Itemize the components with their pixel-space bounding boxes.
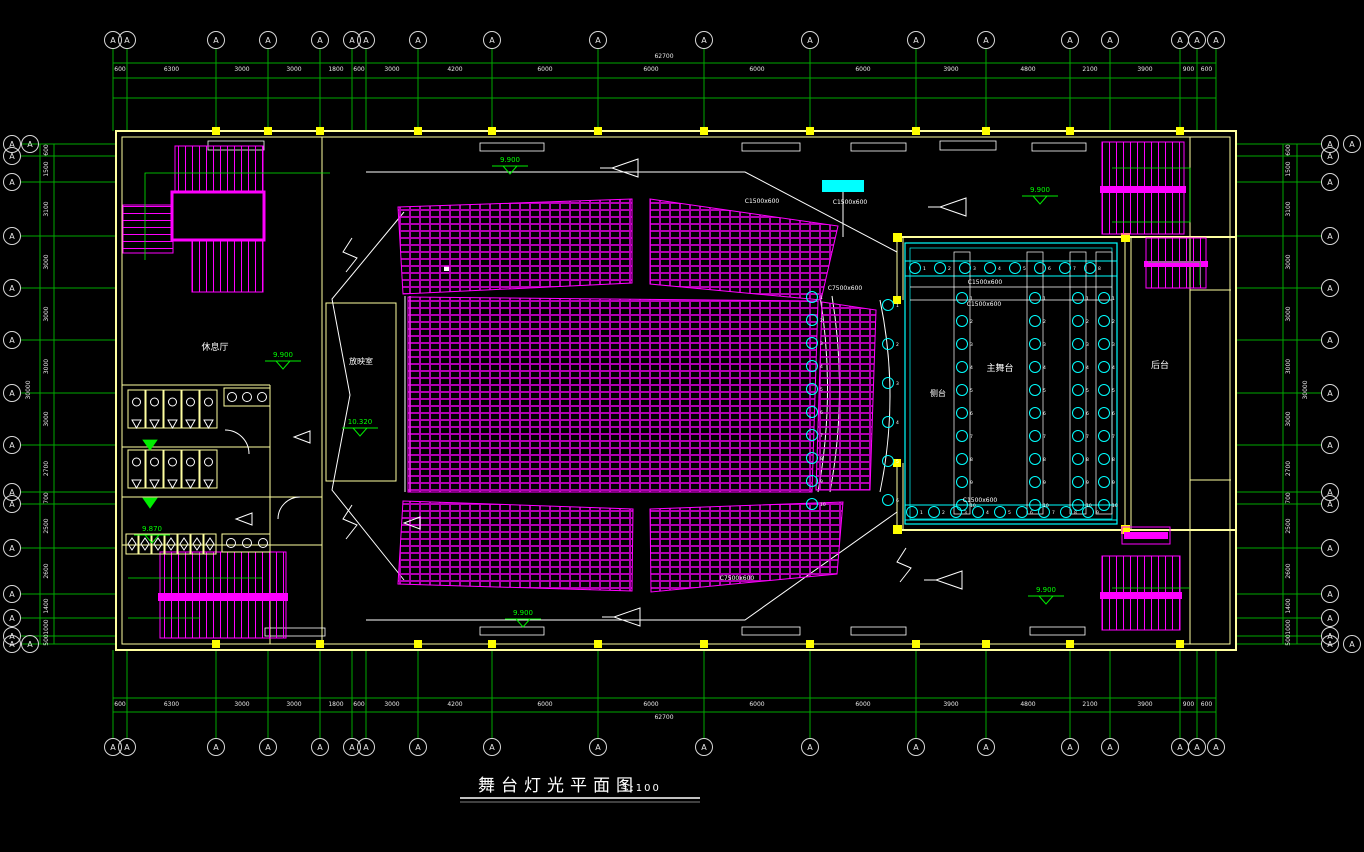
dimension-label: 3000 xyxy=(234,66,249,73)
stage-light xyxy=(1073,385,1084,396)
sink-basin xyxy=(228,393,237,402)
equipment-label: C1500x600 xyxy=(833,199,868,206)
stage-light-number: 9 xyxy=(1096,510,1099,516)
stage-light-number: 8 xyxy=(1112,457,1115,463)
room-label-side-stage: 侧台 xyxy=(930,388,946,398)
wc-fixture xyxy=(133,458,141,466)
seat-block-rear-curve xyxy=(816,302,876,490)
dimension-label: 6000 xyxy=(537,66,552,73)
equipment-label: C1500x600 xyxy=(963,497,998,504)
dimension-label: 900 xyxy=(1183,66,1195,73)
door-swing-arc xyxy=(225,430,249,454)
axis-bubble-label: A xyxy=(213,36,219,45)
wc-fixture xyxy=(187,398,195,406)
stall-door xyxy=(150,420,159,428)
axis-bubble-label: A xyxy=(213,743,219,752)
drawing-title: 舞台灯光平面图 xyxy=(478,776,639,796)
stage-light xyxy=(1030,316,1041,327)
axis-bubble-label: A xyxy=(1327,590,1333,599)
elevation-marker-triangle xyxy=(276,361,290,369)
stage-light-number: 3 xyxy=(1086,342,1089,348)
stage-light xyxy=(957,362,968,373)
sink-basin xyxy=(243,393,252,402)
dimension-label: 600 xyxy=(114,701,126,708)
toilet-stall xyxy=(146,390,163,428)
stage-light-number: 7 xyxy=(1073,266,1076,272)
flow-arrow xyxy=(143,498,157,508)
stall-door xyxy=(204,420,213,428)
stage-light-number: 4 xyxy=(820,364,823,370)
axis-bubble-label: A xyxy=(1327,389,1333,398)
axis-bubble-label: A xyxy=(363,743,369,752)
stall-door xyxy=(168,420,177,428)
overall-height-label: 30000 xyxy=(25,380,32,399)
sink-counter xyxy=(222,534,270,552)
stage-light xyxy=(960,263,971,274)
axis-bubble-label: A xyxy=(1327,152,1333,161)
stage-light-number: 6 xyxy=(1112,411,1115,417)
stage-light-number: 9 xyxy=(1043,480,1046,486)
sink-counter xyxy=(224,388,270,406)
stage-light xyxy=(1099,454,1110,465)
axis-bubble-label: A xyxy=(1349,140,1355,149)
axis-bubble-label: A xyxy=(1349,640,1355,649)
dimension-label: 2500 xyxy=(43,518,50,533)
stage-light xyxy=(957,339,968,350)
axis-bubble-label: A xyxy=(1327,614,1333,623)
stage-light xyxy=(985,263,996,274)
equipment-label: C7500x600 xyxy=(828,285,863,292)
stage-light xyxy=(1010,263,1021,274)
dimension-label: 3000 xyxy=(384,701,399,708)
axis-bubble-label: A xyxy=(1107,36,1113,45)
stage-light xyxy=(1073,293,1084,304)
dimension-label: 500 xyxy=(43,634,50,646)
dimension-label: 3000 xyxy=(43,306,50,321)
stage-light-number: 5 xyxy=(1023,266,1026,272)
stage-batten-track xyxy=(1070,252,1086,514)
dimension-label: 2600 xyxy=(43,563,50,578)
axis-bubble-label: A xyxy=(9,152,15,161)
elevation-value: 9.900 xyxy=(513,609,533,617)
stage-light-number: 10 xyxy=(1086,503,1092,509)
orchestra-arc xyxy=(880,300,890,492)
stage-light xyxy=(957,477,968,488)
stage-light xyxy=(935,263,946,274)
axis-bubble-label: A xyxy=(1327,178,1333,187)
exit-arrow-small xyxy=(294,431,310,443)
elevation-value: 9.900 xyxy=(500,156,520,164)
axis-bubble-label: A xyxy=(9,640,15,649)
stage-light-number: 5 xyxy=(896,459,899,465)
dimension-label: 3000 xyxy=(234,701,249,708)
stage-light-number: 9 xyxy=(820,479,823,485)
overall-width-label: 62700 xyxy=(654,714,673,721)
dimension-label: 3000 xyxy=(286,66,301,73)
stage-light-number: 4 xyxy=(1112,365,1115,371)
stage-light xyxy=(1099,408,1110,419)
stage-light-number: 4 xyxy=(1086,365,1089,371)
toilet-stall xyxy=(200,390,217,428)
stage-light xyxy=(1030,431,1041,442)
dimension-label: 6000 xyxy=(749,66,764,73)
axis-bubble-label: A xyxy=(913,743,919,752)
wc-fixture xyxy=(205,458,213,466)
stage-light-number: 8 xyxy=(1086,457,1089,463)
stage-light xyxy=(1099,339,1110,350)
axis-bubble-label: A xyxy=(1327,232,1333,241)
stage-light-number: 10 xyxy=(820,502,826,508)
axis-bubble-label: A xyxy=(317,36,323,45)
dimension-label: 1000 xyxy=(43,619,50,634)
dimension-label: 900 xyxy=(1183,701,1195,708)
axis-bubble-label: A xyxy=(349,36,355,45)
sink-basin xyxy=(227,539,236,548)
stage-light-number: 2 xyxy=(942,510,945,516)
axis-bubble-label: A xyxy=(265,36,271,45)
stage-light-number: 1 xyxy=(896,303,899,309)
axis-bubble-label: A xyxy=(807,36,813,45)
wc-fixture xyxy=(169,458,177,466)
stage-light-number: 6 xyxy=(1086,411,1089,417)
stage-light-number: 1 xyxy=(1086,296,1089,302)
stage-light-number: 6 xyxy=(1030,510,1033,516)
axis-bubble-label: A xyxy=(1067,743,1073,752)
dimension-label: 1800 xyxy=(328,701,343,708)
stage-light-number: 8 xyxy=(1098,266,1101,272)
exit-arrow xyxy=(924,571,962,589)
dimension-label: 3000 xyxy=(1285,254,1292,269)
dimension-label: 700 xyxy=(43,492,50,504)
lighting-control-box xyxy=(822,180,864,192)
axis-bubble-label: A xyxy=(265,743,271,752)
stage-light xyxy=(957,385,968,396)
elevation-value: 9.900 xyxy=(1036,586,1056,594)
equipment-label: C1500x600 xyxy=(968,279,1003,286)
axis-bubble-label: A xyxy=(1107,743,1113,752)
toilet-stall xyxy=(182,450,199,488)
stage-light-number: 5 xyxy=(1086,388,1089,394)
stage-light xyxy=(907,507,918,518)
dimension-label: 3900 xyxy=(1137,701,1152,708)
stage-light xyxy=(1099,477,1110,488)
sink-basin xyxy=(258,393,267,402)
elevation-value: 9.900 xyxy=(1030,186,1050,194)
stage-light-number: 5 xyxy=(1008,510,1011,516)
flow-arrow xyxy=(143,440,157,450)
seat-block-center xyxy=(408,297,818,492)
stage-light xyxy=(1060,263,1071,274)
stage-light-number: 3 xyxy=(896,381,899,387)
stall-door xyxy=(150,480,159,488)
toilet-stall xyxy=(164,390,181,428)
stage-light xyxy=(1099,293,1110,304)
wc-fixture xyxy=(151,398,159,406)
stage-light-number: 7 xyxy=(820,433,823,439)
stage-light-number: 7 xyxy=(1043,434,1046,440)
seat-block-upper-left xyxy=(398,199,632,294)
dimension-label: 600 xyxy=(1201,701,1213,708)
dimension-label: 700 xyxy=(1285,492,1292,504)
axis-bubble-label: A xyxy=(489,743,495,752)
stage-light-number: 10 xyxy=(1043,503,1049,509)
elevation-marker-triangle xyxy=(1033,196,1047,204)
dimension-label: 2700 xyxy=(43,461,50,476)
axis-bubble-label: A xyxy=(27,640,33,649)
stage-light xyxy=(910,263,921,274)
dimension-label: 600 xyxy=(353,701,365,708)
dimension-label: 3100 xyxy=(43,201,50,216)
dimension-label: 2700 xyxy=(1285,461,1292,476)
urinal-bowl xyxy=(193,538,201,550)
axis-bubble-label: A xyxy=(9,544,15,553)
stage-light xyxy=(883,456,894,467)
stage-light-number: 3 xyxy=(964,510,967,516)
stage-light xyxy=(883,495,894,506)
axis-bubble-label: A xyxy=(1327,336,1333,345)
room-label-backstage: 后台 xyxy=(1151,359,1169,371)
stage-light-number: 8 xyxy=(970,457,973,463)
axis-bubble-label: A xyxy=(9,232,15,241)
dimension-label: 2100 xyxy=(1082,701,1097,708)
stage-light-number: 4 xyxy=(896,420,899,426)
room-label-main-stage: 主舞台 xyxy=(986,362,1013,374)
axis-bubble-label: A xyxy=(1213,36,1219,45)
toilet-stall xyxy=(146,450,163,488)
axis-bubble-label: A xyxy=(1194,743,1200,752)
door-swing-arc xyxy=(278,497,300,519)
stage-batten-track xyxy=(1027,252,1043,514)
stage-light-number: 4 xyxy=(998,266,1001,272)
stage-light-number: 2 xyxy=(1043,319,1046,325)
axis-bubble-label: A xyxy=(415,743,421,752)
axis-bubble-label: A xyxy=(807,743,813,752)
stage-light xyxy=(929,507,940,518)
dimension-label: 6000 xyxy=(643,66,658,73)
stage-light-number: 6 xyxy=(1048,266,1051,272)
axis-bubble-label: A xyxy=(701,743,707,752)
axis-bubble-label: A xyxy=(983,743,989,752)
stage-light-number: 2 xyxy=(896,342,899,348)
stage-light-number: 8 xyxy=(1043,457,1046,463)
toilet-stall xyxy=(182,390,199,428)
axis-bubble-label: A xyxy=(701,36,707,45)
stall-door xyxy=(168,480,177,488)
stage-light xyxy=(883,339,894,350)
stair-top-left-side xyxy=(123,205,173,253)
exit-arrow-small xyxy=(236,513,252,525)
wc-fixture xyxy=(205,398,213,406)
stair-bottom-right-rail xyxy=(1100,592,1182,599)
elevation-value: 10.320 xyxy=(348,418,373,426)
axis-bubble-label: A xyxy=(9,441,15,450)
stair-top-left-upper xyxy=(175,146,263,192)
room-label-lounge: 休息厅 xyxy=(201,341,228,353)
stage-light-number: 3 xyxy=(970,342,973,348)
stage-light xyxy=(1030,454,1041,465)
stall-door xyxy=(186,420,195,428)
axis-bubble-label: A xyxy=(595,36,601,45)
stage-light-number: 2 xyxy=(948,266,951,272)
urinal-bowl xyxy=(167,538,175,550)
stage-light xyxy=(1030,385,1041,396)
stage-light-number: 7 xyxy=(970,434,973,440)
stage-light xyxy=(1073,431,1084,442)
stage-light-number: 1 xyxy=(1043,296,1046,302)
stall-door xyxy=(132,420,141,428)
dimension-label: 6000 xyxy=(537,701,552,708)
axis-bubble-label: A xyxy=(1327,544,1333,553)
seat-block-lower-left xyxy=(398,501,633,591)
axis-bubble-label: A xyxy=(489,36,495,45)
stage-light xyxy=(1099,316,1110,327)
exit-arrow xyxy=(928,198,966,216)
axis-bubble-label: A xyxy=(595,743,601,752)
stage-light xyxy=(1030,293,1041,304)
dimension-label: 6000 xyxy=(855,701,870,708)
wc-fixture xyxy=(151,458,159,466)
urinal-bowl xyxy=(206,538,214,550)
axis-bubble-label: A xyxy=(9,500,15,509)
stage-light-number: 5 xyxy=(1043,388,1046,394)
stall-door xyxy=(186,480,195,488)
dimension-label: 3000 xyxy=(43,411,50,426)
dimension-label: 3000 xyxy=(286,701,301,708)
urinal-bowl xyxy=(141,538,149,550)
axis-bubble-label: A xyxy=(363,36,369,45)
dimension-label: 1400 xyxy=(43,598,50,613)
axis-bubble-label: A xyxy=(9,336,15,345)
axis-bubble-label: A xyxy=(1067,36,1073,45)
dimension-label: 2500 xyxy=(1285,518,1292,533)
axis-bubble-label: A xyxy=(9,614,15,623)
dimension-label: 4200 xyxy=(447,66,462,73)
wc-fixture xyxy=(169,398,177,406)
axis-bubble-label: A xyxy=(983,36,989,45)
stage-light-number: 7 xyxy=(1112,434,1115,440)
elevation-marker-triangle xyxy=(353,428,367,436)
overall-height-label: 30000 xyxy=(1302,380,1309,399)
axis-bubble-label: A xyxy=(415,36,421,45)
stage-light-number: 4 xyxy=(970,365,973,371)
dimension-label: 3000 xyxy=(1285,306,1292,321)
stage-light-number: 7 xyxy=(1052,510,1055,516)
floorplan-canvas: 6006006300630030003000300030001800180060… xyxy=(0,0,1364,852)
axis-bubble-label: A xyxy=(110,36,116,45)
stage-light xyxy=(1099,385,1110,396)
stage-light-number: 3 xyxy=(1043,342,1046,348)
dimension-label: 3900 xyxy=(943,701,958,708)
stage-light-number: 5 xyxy=(820,387,823,393)
toilet-stall xyxy=(200,450,217,488)
elevation-value: 9.900 xyxy=(273,351,293,359)
stage-light xyxy=(957,316,968,327)
stair-top-left-lower xyxy=(192,240,263,292)
dimension-label: 6000 xyxy=(749,701,764,708)
wc-fixture xyxy=(187,458,195,466)
urinal-bowl xyxy=(180,538,188,550)
axis-bubble-label: A xyxy=(9,284,15,293)
title-block: 舞台灯光平面图 1:100 xyxy=(460,776,700,802)
stage-light xyxy=(1073,339,1084,350)
stage-light xyxy=(1073,477,1084,488)
axis-bubble-label: A xyxy=(1194,36,1200,45)
stage-light-number: 6 xyxy=(1043,411,1046,417)
stage-light xyxy=(951,507,962,518)
elevation-marker-triangle xyxy=(503,166,517,174)
toilet-stall xyxy=(128,450,145,488)
stage-light xyxy=(1017,507,1028,518)
dimension-label: 2100 xyxy=(1082,66,1097,73)
stage-light xyxy=(1073,316,1084,327)
sink-basin xyxy=(243,539,252,548)
stage-light xyxy=(1030,339,1041,350)
stair-top-right-rail xyxy=(1100,186,1186,193)
dimension-label: 600 xyxy=(43,144,50,156)
toilet-stall xyxy=(128,390,145,428)
stage-light-number: 3 xyxy=(973,266,976,272)
stair-bottom-left-rail xyxy=(158,593,288,601)
stage-light-number: 1 xyxy=(1112,296,1115,302)
stage-light-number: 2 xyxy=(1112,319,1115,325)
axis-bubble-label: A xyxy=(1327,500,1333,509)
stall-door xyxy=(132,480,141,488)
break-line-symbol xyxy=(343,505,357,539)
stage-light-number: 5 xyxy=(1112,388,1115,394)
equipment-label: C7500x600 xyxy=(720,575,755,582)
stage-light-number: 9 xyxy=(1086,480,1089,486)
axis-bubble-label: A xyxy=(110,743,116,752)
dimension-label: 600 xyxy=(353,66,365,73)
dimension-label: 4200 xyxy=(447,701,462,708)
stage-light-number: 10 xyxy=(1112,503,1118,509)
stage-light-number: 3 xyxy=(820,341,823,347)
dimension-label: 6300 xyxy=(164,66,179,73)
break-line-symbol xyxy=(343,238,357,272)
dimension-label: 1500 xyxy=(1285,161,1292,176)
stage-light-number: 9 xyxy=(1112,480,1115,486)
stage-light-number: 4 xyxy=(986,510,989,516)
axis-bubble-label: A xyxy=(1177,36,1183,45)
axis-bubble-label: A xyxy=(9,178,15,187)
axis-bubble-label: A xyxy=(124,743,130,752)
stage-light xyxy=(883,417,894,428)
stair-top-left-shaft xyxy=(172,192,264,240)
dimension-label: 1400 xyxy=(1285,598,1292,613)
axis-bubble-label: A xyxy=(1213,743,1219,752)
stage-light xyxy=(883,378,894,389)
stage-light xyxy=(1035,263,1046,274)
elevation-value: 9.870 xyxy=(142,525,162,533)
equipment-label: C1500x600 xyxy=(967,301,1002,308)
axis-bubble-label: A xyxy=(1327,284,1333,293)
exit-arrow xyxy=(602,608,640,626)
axis-bubble-label: A xyxy=(1177,743,1183,752)
room-label-projection: 放映室 xyxy=(349,356,373,366)
dimension-label: 500 xyxy=(1285,634,1292,646)
stage-light xyxy=(957,431,968,442)
urinal-bowl xyxy=(128,538,136,550)
stage-light-number: 5 xyxy=(970,388,973,394)
drawing-scale: 1:100 xyxy=(622,783,661,794)
stage-light xyxy=(1099,362,1110,373)
stage-light-number: 6 xyxy=(820,410,823,416)
elevation-marker-triangle xyxy=(1039,596,1053,604)
stage-light xyxy=(883,300,894,311)
dimension-label: 1800 xyxy=(328,66,343,73)
axis-bubble-label: A xyxy=(124,36,130,45)
toilet-stall xyxy=(164,450,181,488)
